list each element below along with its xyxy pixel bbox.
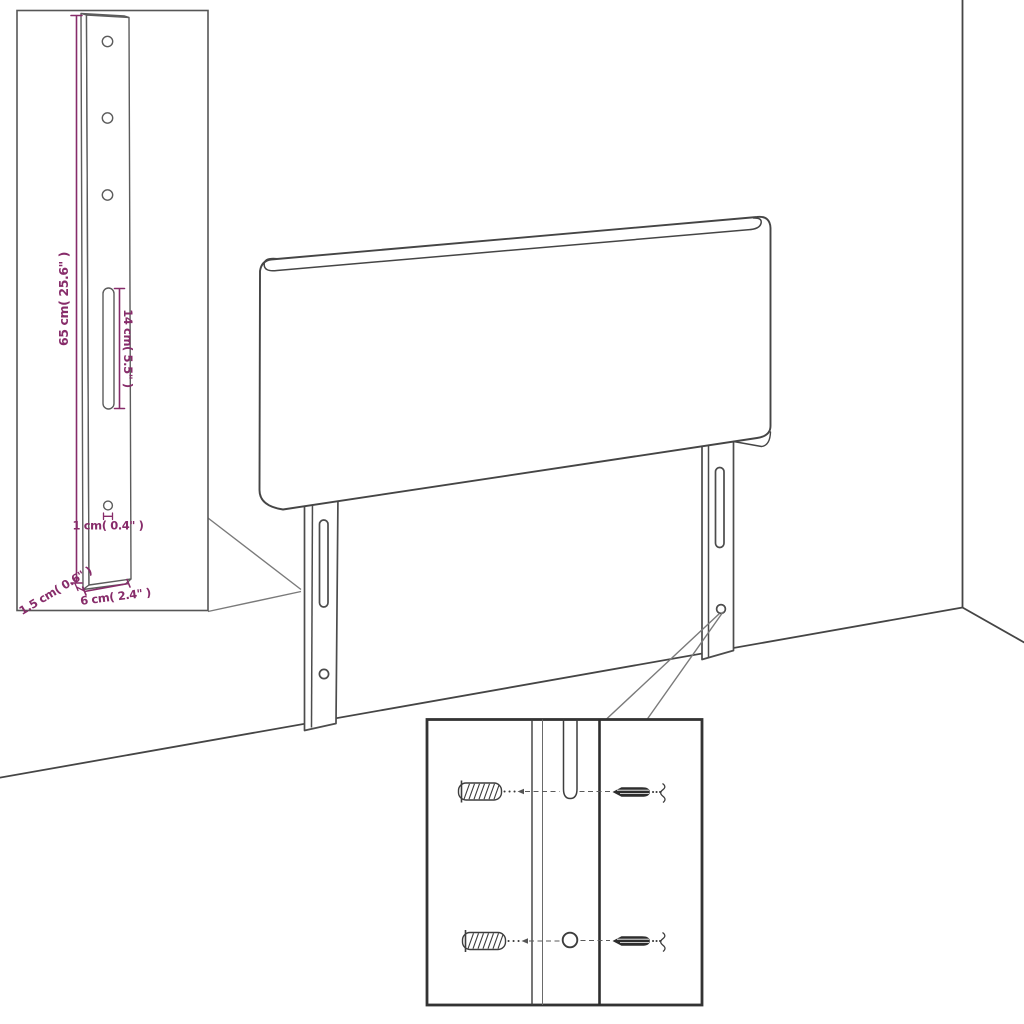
callout-line <box>208 518 301 590</box>
floor-line-right <box>963 608 1024 644</box>
headboard-panel <box>260 217 771 510</box>
dimension-inset: 65 cm( 25.6" ) 14 cm( 5.5" ) 1 cm( 0.4" … <box>16 11 208 618</box>
callout-line <box>208 592 301 612</box>
right-leg-hole <box>717 605 726 614</box>
leg-front-face <box>87 15 132 585</box>
panel-outline <box>260 217 771 510</box>
callout-line <box>606 614 720 720</box>
headboard-leg-left <box>305 494 339 731</box>
left-leg-slot <box>320 520 329 607</box>
inset-frame <box>427 720 702 1006</box>
diagram-canvas: 65 cm( 25.6" ) 14 cm( 5.5" ) 1 cm( 0.4" … <box>0 0 1024 1024</box>
left-leg-edge-line <box>312 497 313 728</box>
mounting-inset <box>427 720 702 1006</box>
callout-lines-left-inset <box>208 518 301 612</box>
dimension-label-65cm: 65 cm( 25.6" ) <box>56 252 71 346</box>
headboard-assembly-diagram: 65 cm( 25.6" ) 14 cm( 5.5" ) 1 cm( 0.4" … <box>0 0 1024 1024</box>
right-leg-slot <box>716 468 725 548</box>
dimension-label-1cm: 1 cm( 0.4" ) <box>73 519 144 533</box>
left-leg-hole <box>319 669 328 678</box>
leg-front-view <box>81 14 131 590</box>
dimension-label-14cm: 14 cm( 5.5" ) <box>121 309 135 388</box>
callout-line <box>647 612 723 720</box>
